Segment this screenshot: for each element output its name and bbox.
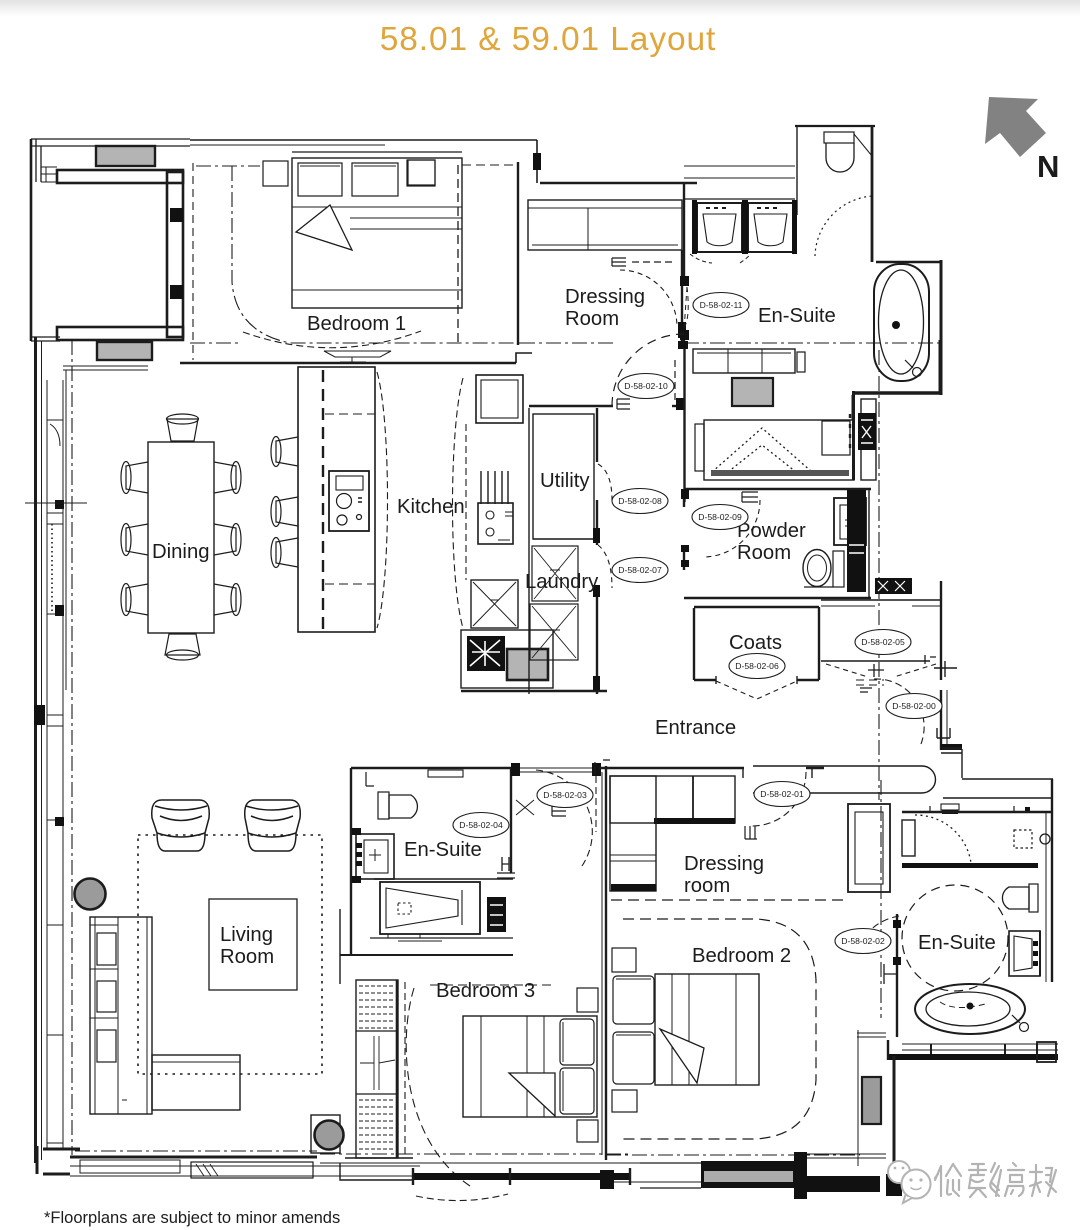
svg-text:En-Suite: En-Suite — [918, 932, 996, 954]
svg-text:Bedroom 2: Bedroom 2 — [692, 945, 791, 967]
svg-text:Dressing: Dressing — [684, 853, 764, 875]
svg-text:D-58-02-11: D-58-02-11 — [700, 300, 743, 310]
svg-text:Coats: Coats — [729, 632, 782, 654]
svg-text:Room: Room — [737, 542, 791, 564]
svg-text:D-58-02-08: D-58-02-08 — [618, 496, 662, 506]
svg-text:N: N — [1037, 149, 1059, 184]
svg-text:En-Suite: En-Suite — [758, 305, 836, 327]
svg-text:Entrance: Entrance — [655, 717, 736, 739]
svg-text:Bedroom 1: Bedroom 1 — [307, 313, 406, 335]
svg-text:Utility: Utility — [540, 470, 590, 492]
svg-text:Room: Room — [565, 308, 619, 330]
svg-text:D-58-02-05: D-58-02-05 — [861, 637, 905, 647]
svg-text:Bedroom 3: Bedroom 3 — [436, 980, 535, 1002]
svg-text:Powder: Powder — [737, 520, 806, 542]
svg-text:*Floorplans are subject to min: *Floorplans are subject to minor amends — [44, 1209, 340, 1227]
svg-text:D-58-02-07: D-58-02-07 — [618, 565, 662, 575]
svg-text:D-58-02-10: D-58-02-10 — [624, 381, 668, 391]
svg-text:D-58-02-00: D-58-02-00 — [892, 701, 936, 711]
svg-text:En-Suite: En-Suite — [404, 839, 482, 861]
svg-text:D-58-02-01: D-58-02-01 — [760, 789, 804, 799]
svg-text:D-58-02-02: D-58-02-02 — [841, 936, 885, 946]
svg-text:Laundry: Laundry — [525, 571, 599, 593]
svg-text:D-58-02-09: D-58-02-09 — [698, 512, 742, 522]
svg-text:Dining: Dining — [152, 541, 210, 563]
svg-text:Kitchen: Kitchen — [397, 496, 465, 518]
svg-text:Dressing: Dressing — [565, 286, 645, 308]
svg-text:Living: Living — [220, 924, 273, 946]
svg-text:room: room — [684, 875, 730, 897]
svg-text:D-58-02-03: D-58-02-03 — [543, 790, 587, 800]
svg-text:D-58-02-06: D-58-02-06 — [735, 661, 779, 671]
svg-text:Room: Room — [220, 946, 274, 968]
svg-text:D-58-02-04: D-58-02-04 — [459, 820, 503, 830]
